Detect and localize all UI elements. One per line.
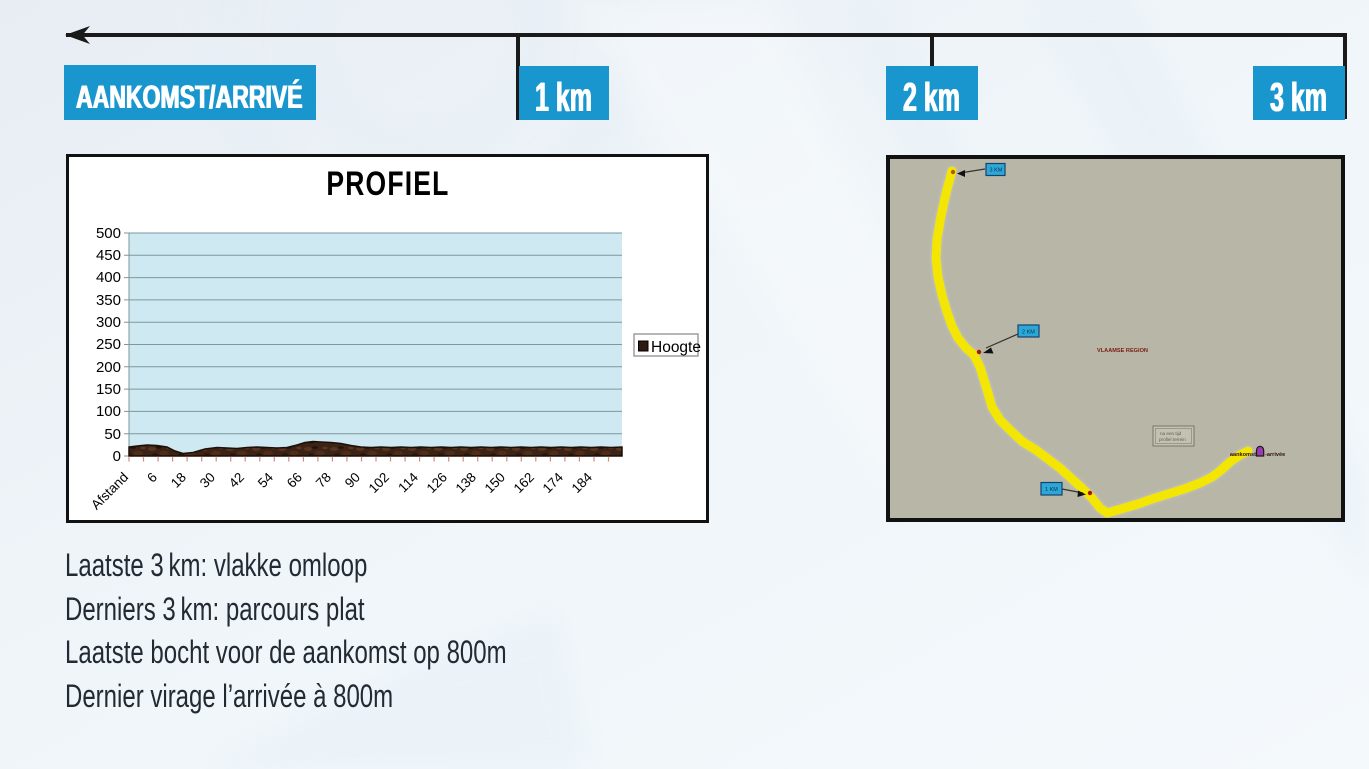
svg-text:50: 50 [104, 426, 121, 443]
svg-text:3 KM: 3 KM [990, 168, 1003, 174]
svg-text:500: 500 [96, 225, 121, 242]
svg-text:54: 54 [255, 469, 277, 491]
svg-text:90: 90 [342, 470, 363, 491]
svg-text:150: 150 [96, 381, 121, 398]
svg-text:200: 200 [96, 359, 121, 376]
svg-text:Afstand: Afstand [88, 470, 131, 513]
svg-text:100: 100 [96, 403, 121, 420]
svg-text:VLAAMSE REGION: VLAAMSE REGION [1097, 348, 1148, 354]
svg-text:na een tijd: na een tijd [1160, 431, 1182, 436]
svg-text:300: 300 [96, 314, 121, 331]
svg-text:1 KM: 1 KM [1045, 487, 1058, 493]
svg-text:114: 114 [395, 469, 421, 495]
svg-text:450: 450 [96, 247, 121, 264]
svg-text:Hoogte: Hoogte [651, 339, 701, 356]
svg-text:138: 138 [453, 470, 480, 497]
svg-text:184: 184 [569, 469, 596, 496]
svg-text:42: 42 [226, 470, 247, 491]
svg-text:78: 78 [313, 470, 334, 491]
svg-text:162: 162 [511, 470, 538, 497]
svg-text:350: 350 [96, 292, 121, 309]
svg-text:6: 6 [144, 470, 160, 486]
svg-text:66: 66 [284, 470, 305, 491]
svg-text:-arrivée: -arrivée [1265, 452, 1285, 458]
svg-text:126: 126 [424, 470, 451, 497]
svg-text:aankomst: aankomst [1230, 452, 1256, 458]
svg-text:0: 0 [113, 448, 121, 465]
svg-text:30: 30 [197, 470, 218, 491]
svg-text:250: 250 [96, 336, 121, 353]
svg-text:150: 150 [482, 470, 509, 497]
svg-text:2 KM: 2 KM [1022, 330, 1035, 336]
svg-text:18: 18 [168, 470, 189, 491]
svg-text:102: 102 [366, 470, 393, 497]
svg-text:174: 174 [540, 469, 567, 496]
svg-text:profiel terrein: profiel terrein [1159, 437, 1186, 442]
svg-text:400: 400 [96, 269, 121, 286]
